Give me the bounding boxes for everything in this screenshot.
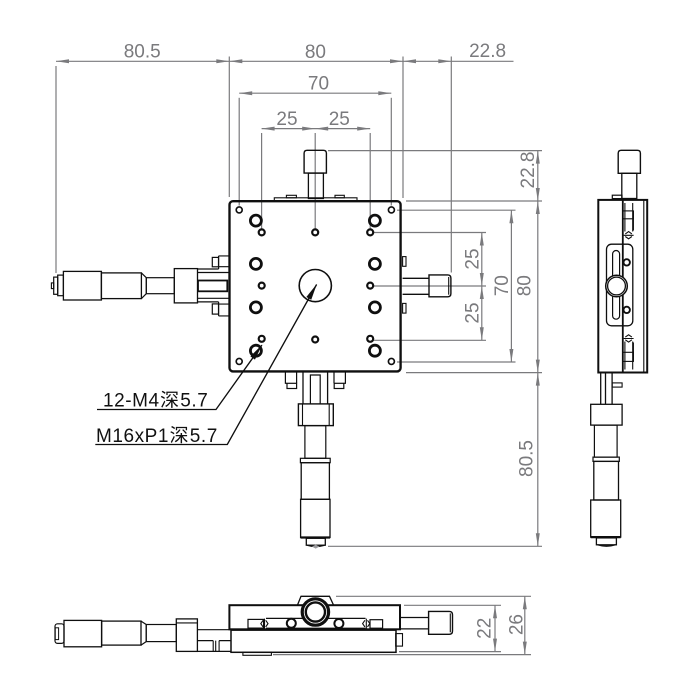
svg-text:22: 22 — [475, 618, 496, 639]
svg-text:22.8: 22.8 — [469, 41, 506, 62]
svg-text:26: 26 — [507, 614, 528, 635]
svg-text:25: 25 — [463, 248, 484, 269]
svg-text:M16xP1: M16xP1 — [96, 426, 169, 447]
svg-text:25: 25 — [276, 109, 297, 130]
svg-text:25: 25 — [463, 302, 484, 323]
svg-text:80.5: 80.5 — [124, 42, 161, 63]
svg-text:25: 25 — [329, 109, 350, 130]
svg-text:22.8: 22.8 — [518, 152, 539, 189]
svg-text:70: 70 — [492, 275, 513, 296]
svg-text:5.7: 5.7 — [180, 391, 208, 412]
svg-text:80: 80 — [515, 275, 536, 296]
svg-text:12-M4: 12-M4 — [103, 391, 160, 412]
svg-text:80: 80 — [305, 42, 326, 63]
svg-text:70: 70 — [308, 73, 329, 94]
svg-text:80.5: 80.5 — [516, 440, 537, 477]
svg-text:5.7: 5.7 — [190, 426, 218, 447]
